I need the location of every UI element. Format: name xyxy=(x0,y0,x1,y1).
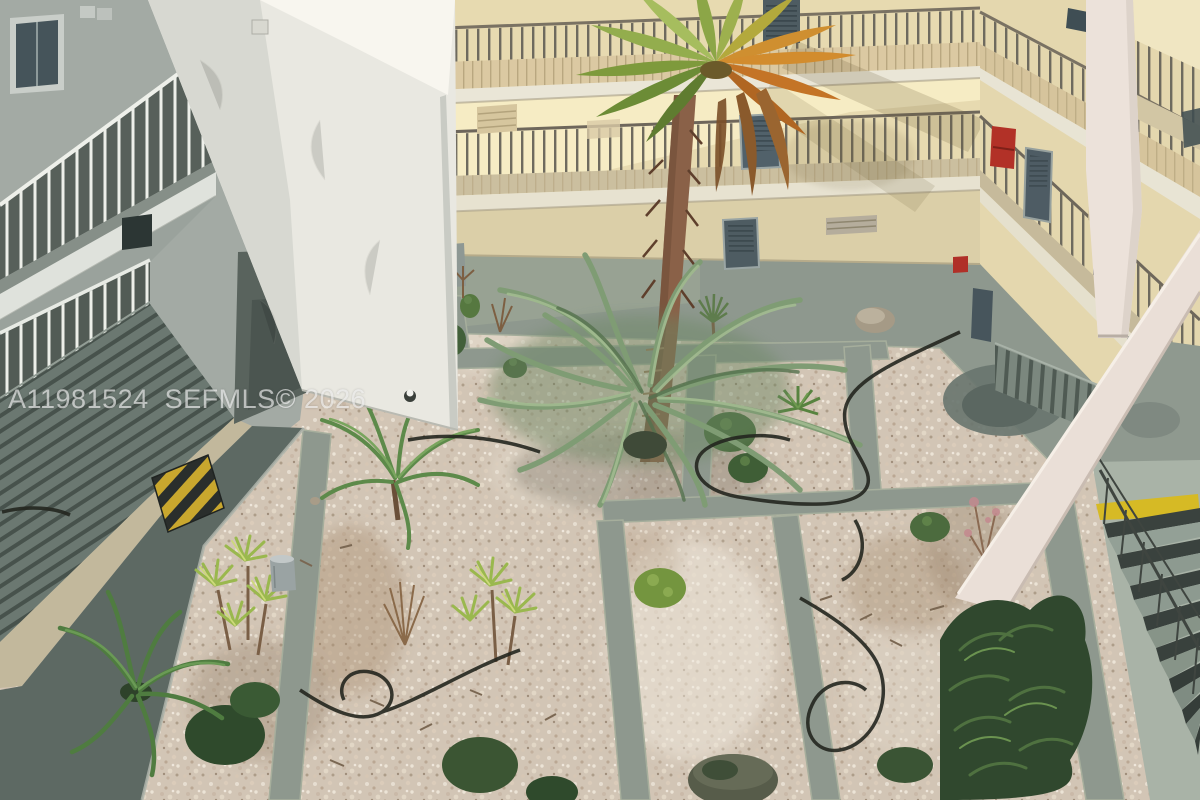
wall-vent xyxy=(80,6,95,18)
utility-panel xyxy=(122,214,152,250)
apartment-door xyxy=(1024,148,1052,222)
apartment-door xyxy=(971,288,993,342)
courtyard-photo: A11981524 SEFMLS© 2026 xyxy=(0,0,1200,800)
metal-bucket xyxy=(270,555,296,592)
window xyxy=(1066,8,1088,32)
fire-alarm-box xyxy=(953,256,968,273)
apartment-door xyxy=(723,218,759,269)
wall-vent xyxy=(826,215,877,235)
